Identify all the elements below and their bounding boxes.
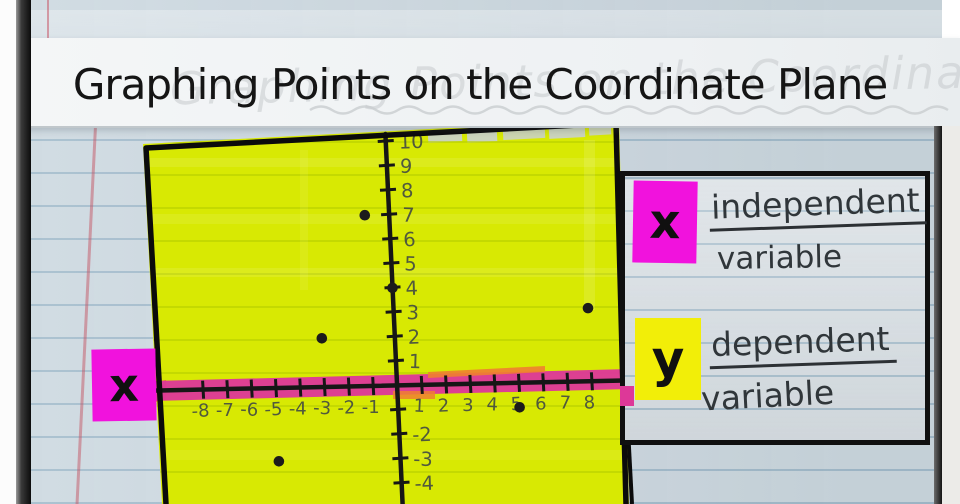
y-tick-label: 1	[408, 350, 421, 373]
y-tick	[383, 263, 399, 264]
x-tick	[567, 373, 568, 391]
photo-edge-dark-right	[934, 126, 942, 504]
x-tick	[203, 381, 204, 399]
x-tick-label: -2	[337, 397, 356, 419]
x-tick-label: 2	[437, 395, 450, 417]
dependent-label: dependent	[708, 319, 896, 364]
notebook-photo: -8-7-6-5-4-3-2-11234567810987654321-2-3-…	[0, 0, 960, 504]
x-tick	[348, 378, 349, 396]
plotted-point	[387, 283, 398, 294]
x-tick	[470, 375, 471, 393]
x-tick	[276, 379, 277, 397]
independent-variable-label: variable	[717, 239, 843, 277]
plotted-point	[359, 210, 370, 221]
x-tick	[227, 380, 228, 398]
definitions-box: x independent variable y dependent varia…	[620, 171, 930, 445]
plotted-point	[583, 303, 594, 314]
x-tick	[543, 373, 544, 391]
y-tick-label: 9	[399, 155, 412, 178]
x-tick	[373, 377, 374, 395]
y-tick	[382, 238, 398, 239]
highlighter-bleed	[620, 386, 634, 406]
x-axis-badge-symbol: x	[109, 358, 140, 413]
y-tick	[379, 165, 395, 166]
y-tick	[386, 311, 402, 312]
page-title: Graphing Points on the Coordinate Plane	[73, 60, 887, 109]
x-tick-label: 6	[535, 393, 546, 414]
y-tick	[394, 482, 410, 483]
y-tick	[390, 409, 406, 410]
x-tick-label: -1	[362, 397, 380, 418]
x-symbol: x	[649, 194, 681, 251]
x-tick-label: -5	[264, 399, 283, 421]
y-symbol-chip: y	[635, 318, 701, 400]
x-tick-label: 4	[486, 394, 499, 416]
plotted-point	[317, 333, 328, 344]
plotted-point	[514, 402, 525, 413]
y-tick-label: -2	[412, 423, 432, 447]
x-tick-label: 8	[583, 392, 596, 414]
y-tick-label: 5	[404, 252, 417, 275]
y-tick-label: -4	[414, 472, 434, 496]
x-tick-label: 3	[462, 395, 473, 416]
x-tick	[251, 380, 252, 398]
x-tick	[591, 372, 592, 390]
x-tick	[300, 379, 301, 397]
y-tick-label: -3	[413, 447, 433, 471]
x-tick	[421, 376, 422, 394]
y-tick	[391, 433, 407, 434]
y-tick	[387, 336, 403, 337]
title-banner: Graphing Points on the Coordinate Plane …	[0, 38, 960, 128]
x-axis-badge: x	[91, 348, 156, 421]
x-tick-label: -3	[313, 398, 332, 420]
y-tick	[388, 360, 404, 361]
y-tick-label: 8	[401, 179, 414, 202]
x-tick-label: -4	[289, 399, 307, 420]
photo-edge-white-right	[942, 126, 960, 504]
y-tick-label: 7	[402, 203, 415, 226]
x-tick	[446, 375, 447, 393]
y-symbol: y	[652, 330, 685, 388]
x-tick-label: -8	[191, 400, 210, 422]
x-symbol-chip: x	[632, 180, 697, 263]
x-tick	[494, 374, 495, 392]
photo-edge-dark-left	[16, 0, 31, 504]
y-tick	[392, 458, 408, 459]
photo-edge-white-left	[0, 0, 16, 504]
x-tick	[324, 378, 325, 396]
y-tick-label: 3	[406, 301, 419, 324]
y-tick-label: 4	[405, 277, 418, 300]
y-tick-label: 2	[407, 326, 420, 349]
y-tick	[378, 141, 394, 142]
x-tick-label: -7	[216, 400, 234, 421]
y-tick	[380, 189, 396, 190]
x-tick	[519, 374, 520, 392]
y-tick	[381, 214, 397, 215]
x-tick-label: 7	[559, 392, 572, 414]
independent-label: independent	[708, 180, 926, 227]
y-tick-label: 6	[403, 228, 416, 251]
x-tick-label: 1	[413, 396, 426, 418]
dependent-variable-label: variable	[700, 373, 835, 419]
plotted-point	[274, 456, 285, 467]
x-tick-label: -6	[240, 399, 259, 421]
